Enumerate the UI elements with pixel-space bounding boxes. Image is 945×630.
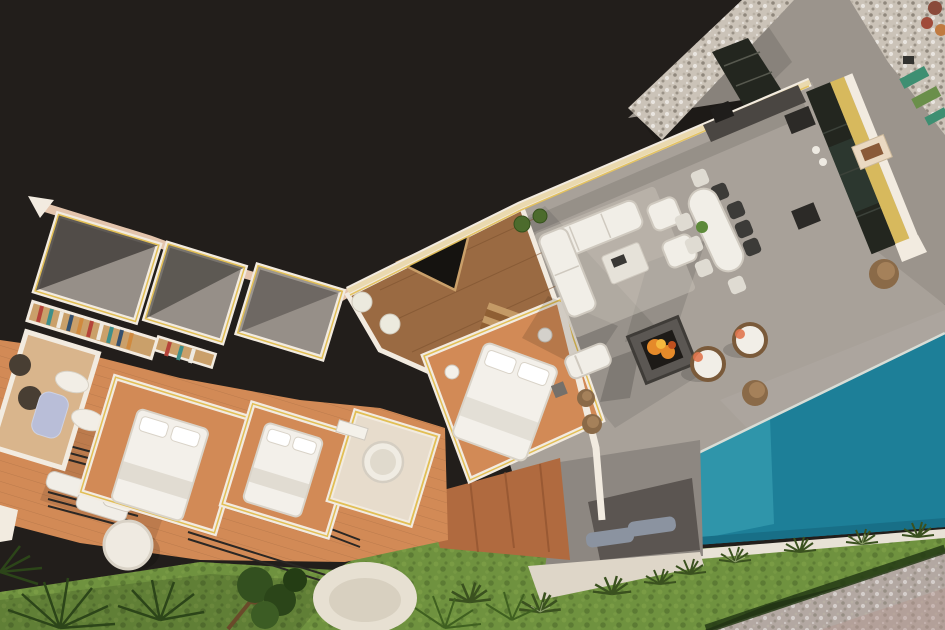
scene-canvas	[0, 0, 945, 630]
rattan-chair	[692, 348, 724, 380]
sink-bowl	[812, 146, 820, 154]
rattan-chair	[734, 324, 766, 356]
round-bathtub-basin	[370, 449, 396, 475]
bedside-table	[445, 365, 459, 379]
round-patio-table	[104, 521, 152, 569]
round-stool	[352, 292, 372, 312]
round-stool	[380, 314, 400, 334]
pouf	[869, 259, 899, 289]
villa-aerial-render	[0, 0, 945, 630]
sink-bowl	[819, 158, 827, 166]
pouf-small	[582, 414, 602, 434]
round-rug	[9, 354, 31, 376]
table-plant	[696, 221, 708, 233]
pouf-small	[577, 389, 595, 407]
pouf	[742, 380, 768, 406]
